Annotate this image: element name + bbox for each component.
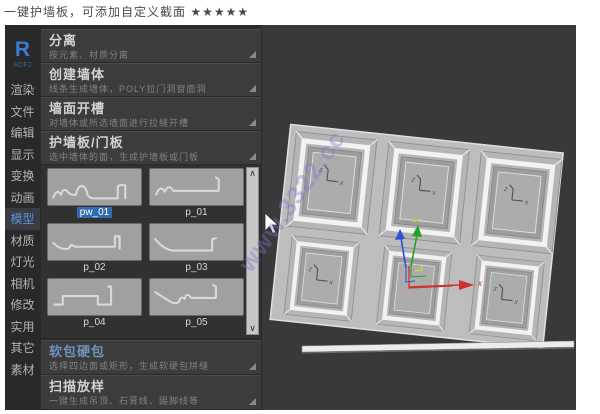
scroll-down-icon[interactable]: ∨ (249, 323, 256, 334)
floor-line (302, 341, 574, 353)
sidebar-item-transform[interactable]: 变换 (5, 165, 40, 187)
corner-fold-icon (249, 398, 256, 405)
profile-item[interactable]: pw_01 (47, 168, 142, 219)
menu-subtitle: 对墙体或所选墙面进行拉缝开槽 (49, 117, 253, 129)
profile-label[interactable]: p_04 (47, 316, 142, 329)
scrollbar[interactable]: ∧ ∨ (246, 167, 259, 335)
profile-label[interactable]: pw_01 (47, 206, 142, 219)
sidebar-item-render[interactable]: 渲染 (5, 79, 40, 101)
plugin-window: R RDF2 渲染 文件 编辑 显示 变换 动画 模型 材质 灯光 相机 修改 … (5, 25, 576, 410)
menu-title: 软包硬包 (49, 344, 253, 360)
corner-fold-icon (249, 119, 256, 126)
menu-title: 护墙板/门板 (49, 135, 253, 151)
sidebar-item-model[interactable]: 模型 (5, 208, 40, 230)
menu-subtitle: 按元素、材质分离 (49, 49, 253, 61)
menu-item-soft-pack[interactable]: 软包硬包 选择四边面或矩形，生成软硬包拼缝 (41, 340, 261, 374)
tool-panel: 分离 按元素、材质分离 创建墙体 线条生成墙体，POLY拉门洞窗面洞 墙面开槽 … (40, 25, 262, 410)
menu-title: 扫描放样 (49, 379, 253, 395)
sidebar-item-display[interactable]: 显示 (5, 144, 40, 166)
profile-item[interactable]: p_02 (47, 223, 142, 274)
menu-title: 墙面开槽 (49, 101, 253, 117)
profile-thumb[interactable] (149, 278, 244, 316)
profile-item[interactable]: p_05 (149, 278, 244, 329)
menu-item-separate[interactable]: 分离 按元素、材质分离 (41, 29, 261, 62)
sidebar-item-utility[interactable]: 实用 (5, 316, 40, 338)
sidebar-item-modify[interactable]: 修改 (5, 294, 40, 316)
gizmo-z-label: z (404, 221, 408, 227)
sidebar-item-assets[interactable]: 素材 (5, 359, 40, 381)
logo-r-icon: R (15, 40, 30, 60)
mouse-cursor-icon (265, 213, 278, 234)
menu-subtitle: 线条生成墙体，POLY拉门洞窗面洞 (49, 83, 253, 95)
profile-item[interactable]: p_01 (149, 168, 244, 219)
corner-fold-icon (249, 363, 256, 370)
sidebar-item-animation[interactable]: 动画 (5, 187, 40, 209)
page-title: 一键护墙板，可添加自定义截面 ★★★★★ (4, 3, 249, 20)
scroll-up-icon[interactable]: ∧ (249, 168, 256, 179)
menu-item-create-wall[interactable]: 创建墙体 线条生成墙体，POLY拉门洞窗面洞 (41, 63, 261, 96)
logo-subtext: RDF2 (13, 62, 31, 69)
sidebar-item-other[interactable]: 其它 (5, 337, 40, 359)
menu-item-wall-panel[interactable]: 护墙板/门板 选中墙体的面，生成护墙板或门板 (41, 131, 261, 164)
corner-fold-icon (249, 153, 256, 160)
sidebar-item-light[interactable]: 灯光 (5, 251, 40, 273)
profile-item[interactable]: p_03 (149, 223, 244, 274)
profile-thumb[interactable] (149, 223, 244, 261)
sidebar-item-file[interactable]: 文件 (5, 101, 40, 123)
profile-thumb[interactable] (149, 168, 244, 206)
profile-thumb[interactable] (47, 223, 142, 261)
corner-fold-icon (249, 85, 256, 92)
profile-thumb[interactable] (47, 278, 142, 316)
menu-title: 创建墙体 (49, 67, 253, 83)
sidebar-item-camera[interactable]: 相机 (5, 273, 40, 295)
profile-thumb[interactable] (47, 168, 142, 206)
profile-grid: pw_01 p_01 p_02 p_03 (41, 165, 261, 338)
menu-item-wall-groove[interactable]: 墙面开槽 对墙体或所选墙面进行拉缝开槽 (41, 97, 261, 130)
menu-subtitle: 选择四边面或矩形，生成软硬包拼缝 (49, 360, 253, 372)
profile-label[interactable]: p_05 (149, 316, 244, 329)
sidebar: R RDF2 渲染 文件 编辑 显示 变换 动画 模型 材质 灯光 相机 修改 … (5, 25, 41, 410)
menu-subtitle: 一键生成吊顶、石膏线、踢脚线等 (49, 395, 253, 407)
profile-label[interactable]: p_02 (47, 261, 142, 274)
sidebar-item-material[interactable]: 材质 (5, 230, 40, 252)
viewport-3d[interactable]: z x (262, 25, 576, 410)
profile-label[interactable]: p_01 (149, 206, 244, 219)
profile-item[interactable]: p_04 (47, 278, 142, 329)
menu-item-sweep-loft[interactable]: 扫描放样 一键生成吊顶、石膏线、踢脚线等 (41, 375, 261, 409)
profile-label[interactable]: p_03 (149, 261, 244, 274)
corner-fold-icon (249, 51, 256, 58)
logo[interactable]: R RDF2 (5, 25, 40, 79)
menu-title: 分离 (49, 33, 253, 49)
menu-subtitle: 选中墙体的面，生成护墙板或门板 (49, 151, 253, 163)
sidebar-item-edit[interactable]: 编辑 (5, 122, 40, 144)
